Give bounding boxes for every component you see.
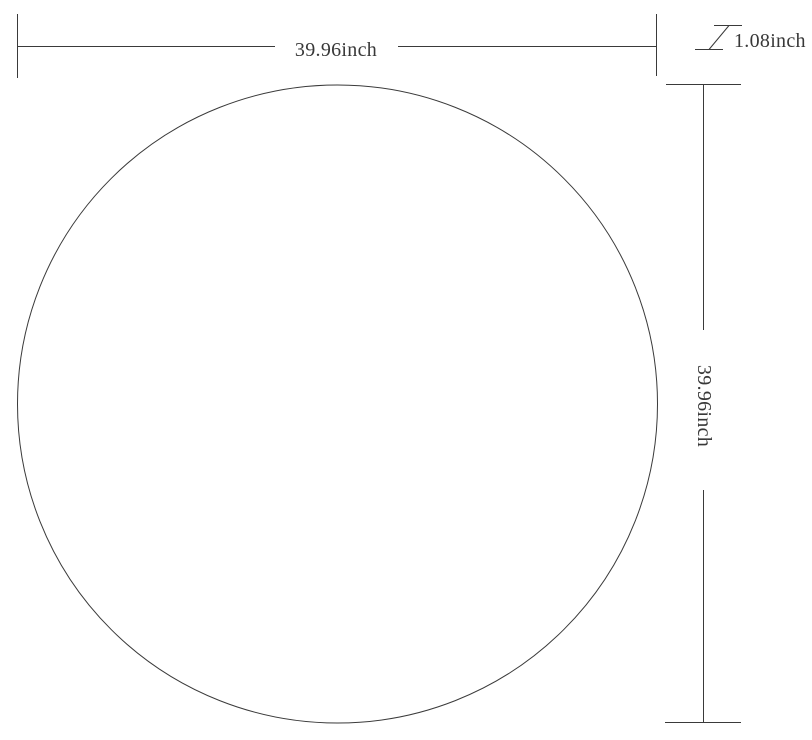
thickness-symbol-diagonal	[709, 26, 729, 50]
circle-outline	[18, 85, 658, 723]
height-dimension-label: 39.96inch	[694, 365, 714, 447]
diagram-linework	[0, 0, 812, 740]
linework-group	[18, 14, 743, 723]
dimension-diagram: 39.96inch 39.96inch 1.08inch	[0, 0, 812, 740]
width-dimension-label: 39.96inch	[295, 40, 377, 60]
thickness-dimension-label: 1.08inch	[734, 31, 806, 51]
